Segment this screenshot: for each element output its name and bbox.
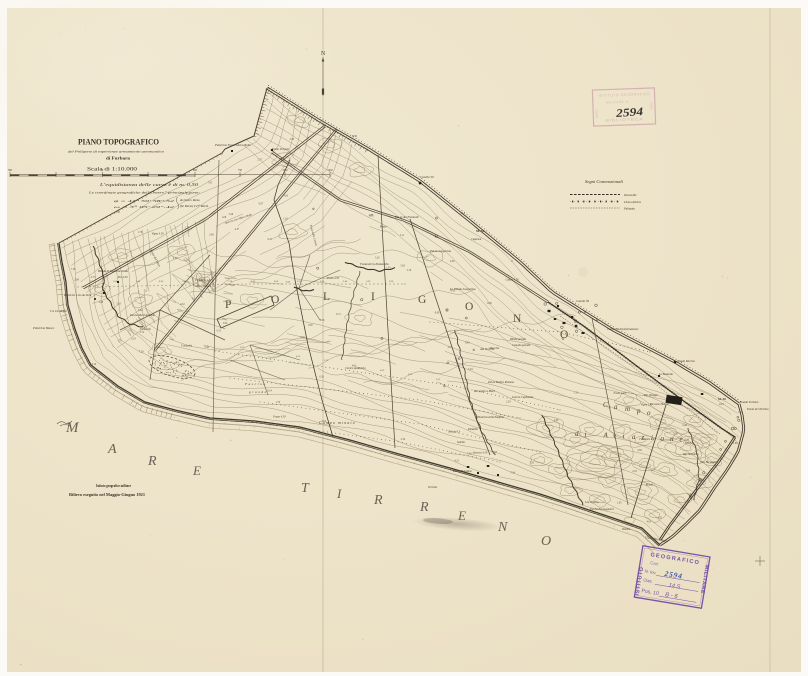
svg-text:1.20: 1.20	[283, 218, 288, 221]
svg-text:8.50: 8.50	[352, 135, 357, 138]
svg-text:7.05: 7.05	[208, 182, 213, 185]
svg-text:grande: grande	[249, 390, 268, 394]
svg-text:N: N	[513, 313, 522, 325]
svg-text:3.54: 3.54	[686, 470, 691, 473]
svg-text:Casale 4.50: Casale 4.50	[505, 279, 519, 282]
svg-text:4.01: 4.01	[647, 521, 652, 524]
svg-text:3.36: 3.36	[204, 346, 209, 349]
svg-text:Pal.ne Langurina: Pal.ne Langurina	[429, 249, 452, 253]
svg-text:9.08: 9.08	[435, 311, 440, 314]
svg-text:7.97: 7.97	[493, 451, 498, 454]
svg-text:Segni Convenzionali: Segni Convenzionali	[585, 179, 624, 184]
svg-text:Albero Bello 4.54: Albero Bello 4.54	[194, 285, 215, 288]
svg-text:7.27: 7.27	[286, 281, 291, 284]
svg-text:9.16: 9.16	[92, 363, 97, 366]
svg-text:Quercia 4.50: Quercia 4.50	[473, 452, 488, 455]
svg-text:1.78: 1.78	[138, 231, 143, 234]
svg-text:n: n	[670, 435, 674, 443]
svg-text:6.71: 6.71	[336, 313, 341, 316]
svg-text:R: R	[373, 493, 383, 508]
svg-text:M. 58: M. 58	[476, 229, 485, 233]
svg-text:Cabina di Trasformazione: Cabina di Trasformazione	[607, 327, 639, 331]
svg-text:Blinda grande: Blinda grande	[510, 338, 527, 341]
svg-text:Fontanile: Fontanile	[180, 345, 193, 348]
svg-text:La Bastarda: La Bastarda	[658, 373, 673, 376]
svg-text:1250: 1250	[327, 169, 333, 172]
svg-text:Pilastrino Bianco: Pilastrino Bianco	[32, 326, 55, 330]
svg-text:3.88: 3.88	[733, 442, 738, 445]
svg-text:3.15: 3.15	[116, 303, 121, 306]
svg-text:O: O	[465, 301, 473, 313]
svg-text:R: R	[419, 500, 429, 515]
svg-text:1.91: 1.91	[386, 267, 391, 270]
svg-text:Pilastrino Fosso Albero Bello: Pilastrino Fosso Albero Bello	[214, 143, 251, 147]
svg-text:0.97: 0.97	[259, 203, 264, 206]
svg-text:Blinda di Macchia tonda: Blinda di Macchia tonda	[98, 269, 128, 273]
svg-text:Saletta: Saletta	[457, 441, 465, 444]
svg-text:1000: 1000	[282, 169, 288, 172]
svg-text:i: i	[651, 434, 653, 442]
svg-text:Lab.rio Capitanale: Lab.rio Capitanale	[511, 396, 534, 399]
svg-text:O: O	[271, 294, 279, 306]
svg-text:i: i	[585, 431, 587, 439]
svg-text:0.51: 0.51	[658, 516, 663, 519]
svg-text:Pozzo: Pozzo	[379, 225, 387, 228]
svg-text:1.31: 1.31	[574, 392, 579, 395]
svg-text:5.70: 5.70	[694, 475, 699, 478]
svg-text:8.14: 8.14	[460, 212, 465, 215]
svg-text:6.56: 6.56	[319, 375, 324, 378]
svg-text:Fontanile: Fontanile	[139, 328, 152, 331]
svg-text:9.45: 9.45	[268, 238, 273, 241]
svg-text:La Blinda Langurina: La Blinda Langurina	[449, 287, 476, 291]
svg-text:2.37: 2.37	[257, 158, 262, 161]
svg-text:Fonte Strejeto: Fonte Strejeto	[271, 147, 289, 151]
svg-text:2.83: 2.83	[290, 138, 295, 141]
svg-text:p: p	[636, 407, 641, 415]
svg-text:(M. Mario) il 27° Merid.: (M. Mario) il 27° Merid.	[180, 204, 209, 208]
svg-text:1.52: 1.52	[115, 211, 120, 214]
svg-text:PIANO TOPOGRAFICO: PIANO TOPOGRAFICO	[78, 138, 159, 147]
svg-text:5.20: 5.20	[375, 257, 380, 260]
svg-text:6.87: 6.87	[308, 324, 313, 327]
svg-text:Capanna: Capanna	[471, 238, 482, 241]
svg-text:T.re V.no Regno: T.re V.no Regno	[50, 310, 68, 313]
svg-text:φ = 41° 59′ 58″.52: φ = 41° 59′ 58″.52	[114, 199, 175, 203]
svg-text:GEN.: GEN.	[649, 102, 653, 110]
svg-text:Pilastrino 1.mo da Nord: Pilastrino 1.mo da Nord	[63, 294, 92, 297]
svg-text:1.03: 1.03	[617, 502, 622, 505]
svg-text:m: m	[625, 405, 630, 413]
svg-text:9.62: 9.62	[300, 336, 305, 339]
svg-text:M. 50: M. 50	[718, 397, 726, 401]
svg-text:Pal.na Macchia tonda: Pal.na Macchia tonda	[129, 314, 156, 317]
svg-text:Linea elettrica: Linea elettrica	[623, 200, 641, 204]
svg-text:Vigna 4.50: Vigna 4.50	[152, 232, 165, 235]
svg-text:da Osserv. Roma: da Osserv. Roma	[180, 198, 200, 202]
svg-text:1.08: 1.08	[222, 216, 227, 219]
svg-text:Ponte del Turbino: Ponte del Turbino	[746, 407, 769, 411]
svg-text:Campo minato: Campo minato	[319, 421, 356, 425]
svg-text:Pilastrino della Palafitta: Pilastrino della Palafitta	[476, 416, 505, 419]
svg-text:A: A	[107, 442, 117, 457]
svg-text:Pal. Hangar: Pal. Hangar	[643, 394, 659, 397]
svg-text:Decauville: Decauville	[623, 193, 637, 197]
svg-text:8.92: 8.92	[284, 194, 289, 197]
svg-text:z: z	[641, 434, 645, 442]
svg-text:di Furbara: di Furbara	[106, 156, 131, 161]
svg-text:3.46: 3.46	[229, 213, 234, 216]
svg-text:2.99: 2.99	[209, 234, 214, 237]
svg-text:I: I	[336, 486, 342, 501]
svg-text:Scala di 1:10.000: Scala di 1:10.000	[87, 168, 138, 173]
svg-text:2.16: 2.16	[632, 470, 637, 473]
svg-text:ω = 3° 05′ 29″.42: ω = 3° 05′ 29″.42	[114, 205, 175, 209]
svg-text:i: i	[623, 433, 625, 441]
svg-text:2.24: 2.24	[131, 337, 136, 340]
svg-text:Pal.ne del Fontanile: Pal.ne del Fontanile	[394, 215, 419, 219]
svg-text:2.19: 2.19	[407, 269, 412, 272]
svg-text:Palafitta: Palafitta	[467, 428, 478, 431]
svg-text:7.05: 7.05	[530, 462, 535, 465]
svg-text:R: R	[147, 454, 157, 469]
svg-text:Pal. 4.38: Pal. 4.38	[117, 276, 128, 279]
svg-text:o: o	[661, 435, 665, 443]
svg-text:o: o	[647, 409, 651, 417]
svg-text:Bersaglio a Mare: Bersaglio a Mare	[474, 389, 496, 393]
svg-text:DIREZ.: DIREZ.	[595, 108, 599, 118]
svg-text:5.04: 5.04	[468, 368, 473, 371]
svg-text:P: P	[225, 299, 231, 311]
svg-text:Isolotto: Isolotto	[621, 528, 631, 531]
svg-text:2.99: 2.99	[554, 419, 559, 422]
svg-text:MILITARE N.: MILITARE N.	[606, 100, 630, 105]
svg-text:Bgt. Solcatori: Bgt. Solcatori	[683, 453, 699, 456]
svg-text:4.52: 4.52	[173, 257, 178, 260]
svg-text:P.te dei Paesaggiatori: P.te dei Paesaggiatori	[589, 508, 614, 511]
svg-text:0.91: 0.91	[223, 322, 228, 325]
svg-text:Torretta: Torretta	[428, 486, 438, 489]
svg-text:5.63: 5.63	[400, 265, 405, 268]
svg-text:Guado Mecino: Guado Mecino	[677, 359, 695, 363]
svg-text:d: d	[575, 430, 579, 438]
svg-text:2.69: 2.69	[74, 278, 79, 281]
svg-text:Fontanile 1.8: Fontanile 1.8	[194, 279, 211, 282]
svg-text:2594: 2594	[615, 106, 644, 120]
svg-text:L: L	[323, 291, 330, 303]
svg-text:4.87: 4.87	[369, 214, 374, 217]
svg-text:Pal.ne Bodero Romano: Pal.ne Bodero Romano	[487, 381, 515, 384]
svg-text:Fascina: Fascina	[244, 382, 266, 386]
svg-text:5.11: 5.11	[400, 234, 405, 237]
svg-text:4.37: 4.37	[235, 228, 240, 231]
svg-text:Istituto geografico militare: Istituto geografico militare	[96, 483, 131, 488]
svg-text:G: G	[418, 294, 426, 306]
svg-text:del Poligono di esperienze arm: del Poligono di esperienze armamento aer…	[68, 150, 164, 154]
svg-text:Centro quadrivio: Centro quadrivio	[345, 366, 366, 370]
svg-text:8.62: 8.62	[138, 309, 143, 312]
svg-text:Pal.no Pelandino: Pal.no Pelandino	[452, 470, 472, 473]
svg-text:Fontanile la Pantanella: Fontanile la Pantanella	[359, 262, 389, 266]
svg-text:O: O	[541, 534, 551, 549]
svg-text:E: E	[192, 463, 201, 478]
svg-text:Blinda 6.3: Blinda 6.3	[448, 431, 460, 434]
svg-text:2.80: 2.80	[673, 433, 678, 436]
svg-text:4.21: 4.21	[455, 460, 460, 463]
svg-text:Aia Vecchia: Aia Vecchia	[479, 347, 495, 351]
svg-text:Comoda grande: Comoda grande	[512, 344, 531, 347]
svg-text:2.03: 2.03	[506, 400, 511, 403]
svg-text:S.ta Vittoria: S.ta Vittoria	[585, 501, 599, 504]
svg-text:2.27: 2.27	[448, 346, 453, 349]
svg-text:6.06: 6.06	[487, 302, 492, 305]
svg-text:a: a	[632, 433, 636, 441]
svg-text:I: I	[371, 291, 375, 303]
svg-text:8.98: 8.98	[320, 319, 325, 322]
svg-text:2.34: 2.34	[401, 438, 406, 441]
svg-text:T: T	[301, 481, 310, 496]
svg-text:5.39: 5.39	[687, 493, 692, 496]
svg-text:9.23: 9.23	[719, 403, 724, 406]
svg-text:4.44: 4.44	[682, 424, 687, 427]
svg-text:2.08: 2.08	[99, 301, 104, 304]
svg-text:7.34: 7.34	[510, 472, 515, 475]
svg-text:7.06: 7.06	[467, 453, 472, 456]
svg-text:1.27: 1.27	[185, 226, 190, 229]
svg-text:Blinda: Blinda	[646, 484, 654, 487]
svg-text:2.90: 2.90	[450, 260, 455, 263]
svg-text:Casello 59: Casello 59	[420, 175, 434, 179]
svg-text:Fosso 2.15: Fosso 2.15	[613, 392, 627, 395]
svg-text:2.74: 2.74	[140, 331, 145, 334]
svg-text:O: O	[560, 329, 568, 341]
svg-text:Casello 58: Casello 58	[576, 299, 589, 303]
svg-text:8.40: 8.40	[465, 342, 470, 345]
svg-text:4.32: 4.32	[180, 303, 185, 306]
svg-text:1.37: 1.37	[738, 411, 743, 414]
svg-text:Guado Turbino: Guado Turbino	[740, 400, 759, 404]
svg-text:e: e	[680, 436, 683, 444]
svg-text:4.75: 4.75	[91, 276, 96, 279]
svg-text:1.70: 1.70	[276, 401, 281, 404]
svg-text:Rilievo eseguito nel Maggio-Gi: Rilievo eseguito nel Maggio-Giugno 1921	[69, 492, 145, 497]
svg-text:6.14: 6.14	[267, 389, 272, 392]
svg-text:A: A	[603, 432, 609, 440]
svg-text:M: M	[65, 420, 80, 436]
svg-text:a: a	[614, 403, 618, 411]
svg-text:7.29: 7.29	[139, 351, 144, 354]
svg-text:Le coordinate geografiche dell: Le coordinate geografiche dell’Osserv.° …	[88, 191, 200, 195]
svg-text:Pozzo 4.50: Pozzo 4.50	[326, 277, 340, 280]
svg-text:0.51: 0.51	[217, 330, 222, 333]
svg-text:Piccante Hangar: Piccante Hangar	[649, 403, 670, 406]
svg-text:Palizzata: Palizzata	[623, 207, 635, 211]
svg-text:3.84: 3.84	[637, 449, 642, 452]
svg-text:Capanna: Capanna	[683, 441, 694, 444]
svg-text:Pozzo 4.50: Pozzo 4.50	[272, 416, 286, 419]
svg-text:7.39: 7.39	[71, 268, 76, 271]
svg-text:C: C	[603, 401, 608, 409]
svg-text:74.o Bersaglieri: 74.o Bersaglieri	[700, 461, 718, 464]
